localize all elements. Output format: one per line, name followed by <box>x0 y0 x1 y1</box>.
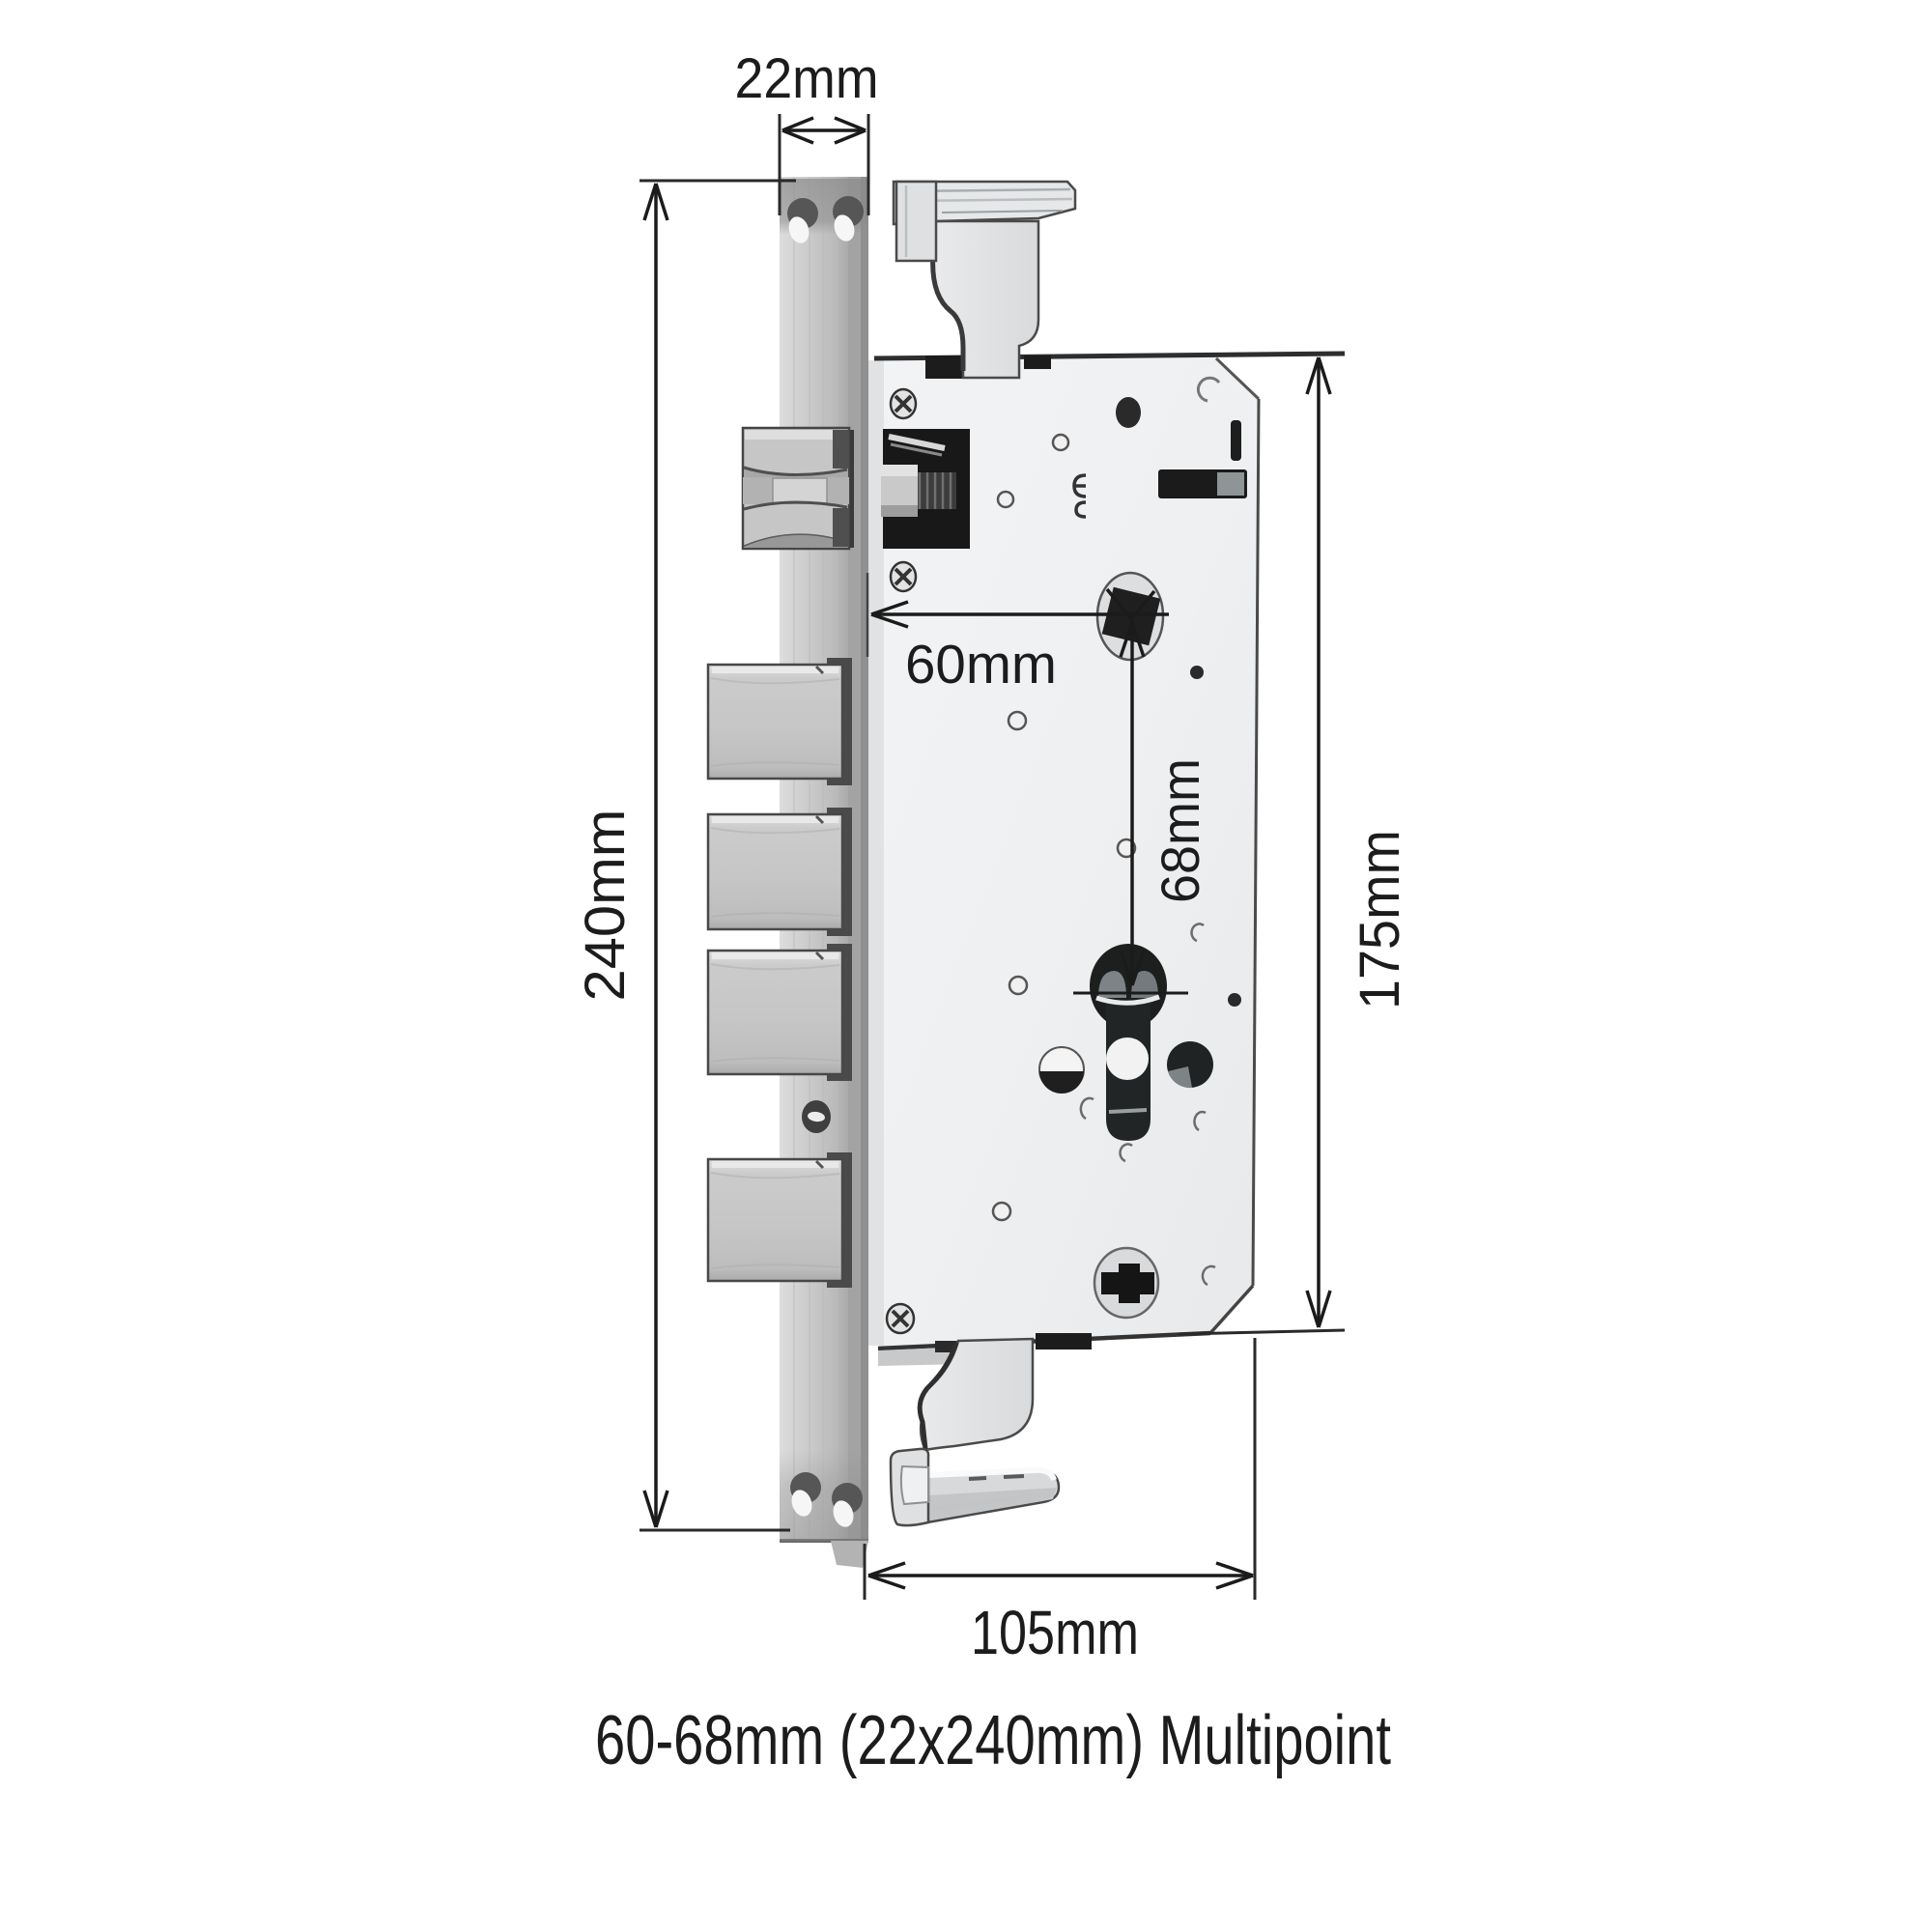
svg-text:60-68mm (22x240mm) Multipoint: 60-68mm (22x240mm) Multipoint <box>595 1702 1391 1779</box>
svg-text:60mm: 60mm <box>905 634 1057 696</box>
svg-text:22mm: 22mm <box>735 47 879 110</box>
svg-text:105mm: 105mm <box>971 1598 1139 1667</box>
svg-text:175mm: 175mm <box>1349 830 1411 1009</box>
svg-text:68mm: 68mm <box>1150 758 1210 903</box>
svg-text:240mm: 240mm <box>574 810 637 1002</box>
